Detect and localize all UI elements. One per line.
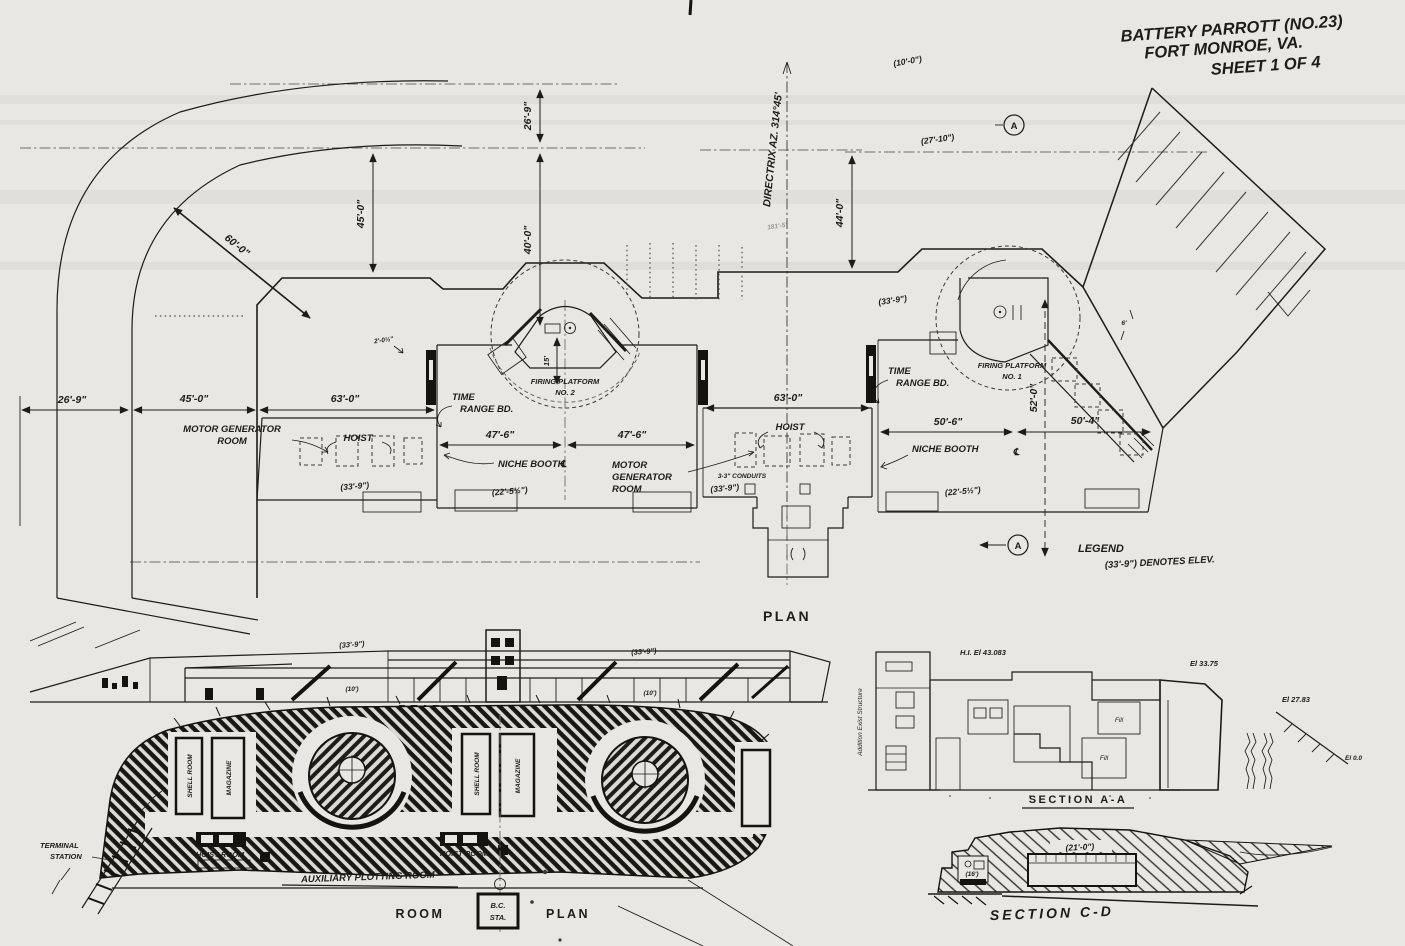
bc-station-box: B.C. STA. (478, 894, 518, 928)
rear-elev-dim-33-9-a: (33'-9") (339, 639, 365, 650)
bank-hatching (1118, 112, 1306, 310)
elevation-mid-label: El 33.75 (1190, 659, 1219, 668)
dim-33-9-left: (33'-9") (340, 480, 370, 492)
dim-22-5-right: (22'-5½") (944, 484, 981, 497)
dim-50-6: 50'-6" (934, 416, 964, 428)
dim-47-6-a: 47'-6" (485, 429, 516, 441)
slope-hatch (1284, 724, 1334, 762)
plan-drawing: 26'-9" 40'-0" 15' 45'-0" 60'-0" 44'-0" 2… (20, 54, 1325, 634)
terminal-station-line2: STATION (50, 852, 82, 861)
dim-15: 15' (542, 356, 551, 366)
scanned-drawing-sheet: 26'-9" 40'-0" 15' 45'-0" 60'-0" 44'-0" 2… (0, 0, 1405, 946)
time-range-bd-2-line2: RANGE BD. (896, 378, 949, 389)
shell-room-2-label: SHELL ROOM (474, 752, 481, 796)
section-aa-side-note: Addition Exist Structure (857, 688, 864, 757)
legend-entry: (33'-9") DENOTES ELEV. (1105, 554, 1215, 571)
break-symbols (1245, 733, 1273, 789)
rear-elev-dim-10-a: (10') (345, 686, 358, 693)
firing-platform-1-line1: FIRING PLATFORM (978, 361, 1047, 370)
dim-60-0: 60'-0" (222, 232, 252, 260)
battery-outline (155, 88, 1325, 598)
dim-27-10-paren: (27'-10") (920, 132, 955, 147)
bc-sta-line1: B.C. (491, 901, 506, 910)
dim-26-9-horizontal: 26'-9" (57, 394, 88, 406)
conduits-note: 3-3" CONDUITS (718, 473, 767, 480)
rear-elev-dim-10-b: (10') (643, 690, 656, 697)
rear-elevation-drawing: (33'-9") (33'-9") (10') (10') REAR ELEVA… (30, 622, 830, 717)
elevation-base-label: El 0.0 (1345, 755, 1362, 762)
centerline-symbol-2: ℄ (1013, 447, 1020, 458)
section-marker-a-bottom: A (1015, 541, 1022, 552)
plan-caption: PLAN (763, 608, 811, 624)
firing-platform-2-line1: FIRING PLATFORM (531, 377, 600, 386)
section-aa-drawing: Addition Exist Structure H.I. El 43.083 (857, 648, 1362, 808)
legend: LEGEND (33'-9") DENOTES ELEV. (1078, 543, 1215, 571)
time-range-bd-2-line1: TIME (888, 366, 911, 377)
firing-platform-1-line2: NO. 1 (1002, 372, 1022, 381)
dim-2-0: 2'-0½" (373, 335, 395, 346)
section-aa-caption: SECTION A-A (1029, 794, 1128, 806)
niche-booth-1: NICHE BOOTH (498, 459, 566, 470)
title-block: BATTERY PARROTT (NO.23) FORT MONROE, VA.… (1120, 12, 1344, 79)
elevation-top-label: H.I. El 43.083 (960, 648, 1007, 657)
dim-47-6-b: 47'-6" (617, 429, 648, 441)
dim-33-9-mid: (33'-9") (710, 482, 740, 494)
dim-45-0-horizontal: 45'-0" (179, 393, 210, 405)
section-cd-caption: SECTION C-D (990, 903, 1114, 923)
section-cd-machinery: (16') (958, 856, 988, 885)
dim-50-4: 50'-4" (1071, 415, 1101, 427)
dim-6: 6' (1121, 320, 1127, 327)
fill-label-2: Fill (1100, 755, 1109, 762)
hoist-label-1: HOIST (343, 433, 373, 444)
dim-52-0: 52'-0" (1028, 383, 1040, 413)
dim-40-0: 40'-0" (522, 225, 534, 256)
dim-44-0: 44'-0" (834, 198, 846, 229)
motor-generator-room-2-line3: ROOM (612, 484, 643, 495)
reference-lines (20, 62, 1208, 585)
motor-generator-room-1-line1: MOTOR GENERATOR (183, 424, 281, 435)
time-range-bd-1-line2: RANGE BD. (460, 404, 513, 415)
plan-dimensions: 26'-9" 40'-0" 15' 45'-0" 60'-0" 44'-0" 2… (22, 54, 1150, 556)
hoist-outlines (300, 433, 850, 467)
hoist-label-2: HOIST (775, 422, 805, 433)
firing-platform-2-line2: NO. 2 (555, 388, 575, 397)
dim-33-9-fp1: (33'-9") (878, 293, 908, 307)
dim-181-5-faint: 181'-5" (767, 221, 790, 231)
plan-caption-bottom: PLAN (546, 907, 590, 921)
niche-booth-2: NICHE BOOTH (912, 444, 980, 455)
section-markers: A A (980, 115, 1028, 555)
motor-generator-room-1-line2: ROOM (217, 436, 248, 447)
section-cd-drawing: (21'-0") (16') SECTION C-D (928, 828, 1332, 923)
dim-26-9-vertical: 26'-9" (522, 101, 534, 132)
dim-10-0-paren: (10'-0") (892, 54, 922, 69)
title-line3: SHEET 1 OF 4 (1210, 53, 1321, 79)
fill-label-1: Fill (1115, 717, 1124, 724)
caponier (745, 484, 848, 577)
hoist-room-1-label: HOIST ROOM (196, 850, 245, 859)
room-caption: ROOM (396, 907, 445, 921)
side-room (742, 750, 770, 826)
section-aa-tower (868, 652, 940, 790)
motor-generator-room-2-line1: MOTOR (612, 460, 647, 471)
hoist-room-2-label: HOIST ROOM (440, 849, 489, 858)
time-range-bd-1-line1: TIME (452, 392, 475, 403)
plan-labels: DIRECTRIX AZ. 314°45' TIME RANGE BD. TIM… (183, 91, 1047, 495)
bc-station-tower (486, 630, 520, 702)
dim-63-0-left: 63'-0" (331, 393, 361, 405)
section-marker-a-top: A (1011, 121, 1018, 132)
section-cd-dim-16: (16') (965, 871, 978, 878)
legend-title: LEGEND (1078, 543, 1124, 555)
gun-symbol-1 (994, 305, 1021, 320)
dim-45-0-vertical: 45'-0" (355, 199, 367, 230)
section-aa-body: Fill Fill (930, 672, 1222, 790)
shell-room-1-label: SHELL ROOM (187, 754, 194, 798)
magazine-2-label: MAGAZINE (515, 758, 522, 793)
rear-elev-dim-33-9-b: (33'-9") (631, 646, 657, 657)
drawing-canvas: 26'-9" 40'-0" 15' 45'-0" 60'-0" 44'-0" 2… (0, 0, 1405, 946)
magazine-1-label: MAGAZINE (226, 760, 233, 795)
room-plan-drawing: SHELL ROOM MAGAZINE SHELL ROOM MAGAZINE … (40, 695, 793, 946)
dim-22-5-left: (22'-5½") (491, 484, 528, 497)
motor-generator-room-2-line2: GENERATOR (612, 472, 672, 483)
curved-road (20, 81, 462, 634)
section-cd-dim-21-0: (21'-0") (1065, 841, 1094, 852)
gun-pit-2 (585, 720, 705, 840)
elevation-right-label: El 27.83 (1282, 695, 1311, 704)
elevation-figures (102, 676, 264, 700)
gun-symbol-2 (545, 323, 576, 334)
gun-pit-1 (292, 716, 412, 836)
terminal-station-line1: TERMINAL (40, 841, 79, 850)
dim-63-0-right: 63'-0" (774, 392, 804, 404)
bc-sta-line2: STA. (490, 913, 507, 922)
